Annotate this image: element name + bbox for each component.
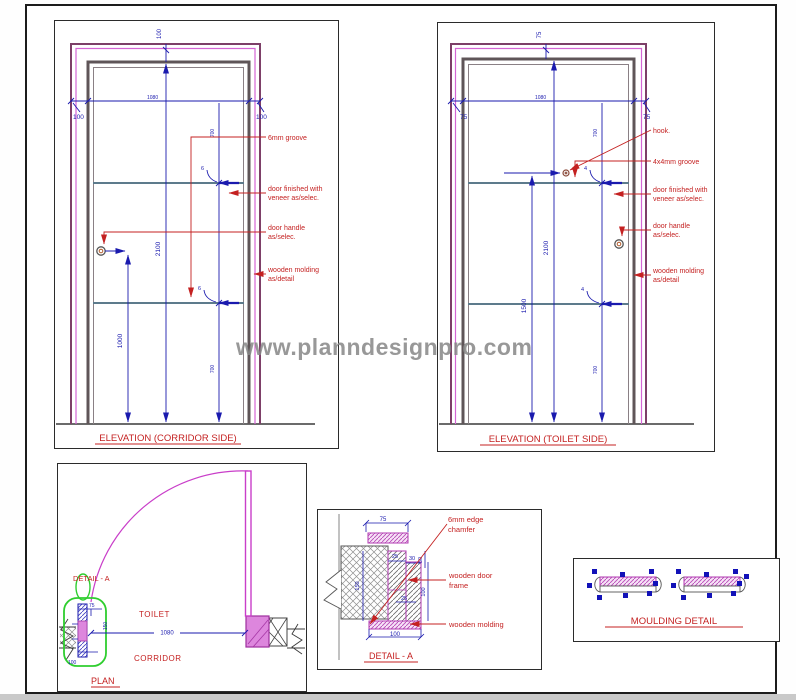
door-frame: [88, 62, 249, 424]
annotation-handle-1: door handle: [268, 225, 305, 232]
dim-molding-width: 100: [68, 660, 77, 666]
door-handle: [97, 247, 105, 255]
moulding-detail-drawing: MOULDING DETAIL: [574, 559, 779, 641]
dim-architrave-left: 100: [73, 114, 84, 121]
title-plan: PLAN: [91, 676, 115, 686]
title-elevation-toilet: ELEVATION (TOILET SIDE): [489, 434, 608, 445]
annotation-molding-1: wooden molding: [652, 268, 704, 275]
elevation-toilet-drawing: 75 75 75 1080 2100 1500 700 700 4 4 hook…: [438, 23, 714, 451]
label-toilet: TOILET: [139, 610, 170, 619]
door-handle-center: [99, 249, 103, 253]
dim-frame-depth: 150: [103, 622, 109, 631]
dim-groove-upper: 6: [201, 166, 204, 172]
dim-handle-height: 1000: [117, 333, 124, 348]
frame-molding-bit: [78, 621, 87, 641]
architrave-inner: [456, 49, 642, 425]
annotation-frame-1: wooden door: [448, 571, 493, 580]
corridor-annotations: 6mm groove door finished with veneer as/…: [267, 135, 323, 283]
dim-architrave-top: 75: [537, 31, 543, 38]
annotation-frame-2: frame: [449, 581, 468, 590]
wall-section-left: [60, 627, 76, 648]
dim-25b: 25: [401, 596, 407, 602]
annotation-molding-1: wooden molding: [267, 267, 319, 274]
annotation-chamfer-1: 6mm edge: [448, 515, 483, 524]
dim-architrave-right: 100: [256, 114, 267, 121]
annotation-groove: 4x4mm groove: [653, 159, 699, 166]
dim-75: 75: [380, 517, 387, 523]
dim-door-height: 2100: [543, 240, 550, 255]
dim-architrave-right: 75: [643, 114, 651, 121]
architrave-inner: [76, 49, 255, 425]
annotation-molding: wooden molding: [448, 620, 504, 629]
dim-panel-upper: 700: [210, 129, 216, 138]
dim-panel-lower: 700: [593, 366, 599, 375]
moulding-section-1: [587, 569, 661, 600]
plan-drawing: 75 150 100 1080 DETAIL - A TOILET CORRID…: [58, 464, 306, 691]
hook: [563, 170, 569, 176]
door-leaf-section: [406, 562, 421, 621]
dim-150: 150: [355, 581, 361, 590]
hook-center: [565, 172, 567, 174]
dim-frame-width: 75: [89, 603, 95, 609]
door-leaf-edge: [94, 68, 244, 425]
dim-architrave-top: 100: [157, 28, 163, 39]
panel-detail-a: 75 25 30 50 150 25 100 100 6mm edge cham…: [317, 509, 542, 670]
annotation-finish-2: veneer as/selec.: [653, 196, 704, 203]
door-swing-arc: [91, 471, 248, 602]
toilet-leaders: [570, 130, 651, 275]
sheet-bottom-edge: [0, 694, 796, 700]
annotation-molding-2: as/detail: [268, 276, 295, 283]
toilet-annotations: hook. 4x4mm groove door finished with ve…: [652, 128, 708, 284]
cad-drawing-sheet: 100 100 100 1080 2100 1000 700 700 6 6 6…: [0, 0, 796, 700]
dim-panel-upper: 700: [593, 129, 599, 138]
dim-100b: 100: [390, 632, 401, 638]
door-handle: [615, 240, 623, 248]
dim-hook-height: 1500: [521, 298, 528, 313]
annotation-finish-1: door finished with: [653, 187, 708, 194]
label-corridor: CORRIDOR: [134, 654, 182, 663]
title-moulding-detail: MOULDING DETAIL: [631, 616, 717, 627]
title-detail-a: DETAIL - A: [369, 651, 413, 661]
toilet-dim-texts: 75 75 75 1080 2100 1500 700 700 4 4: [460, 31, 651, 374]
wall-section: [341, 546, 388, 619]
dim-100a: 100: [421, 587, 427, 596]
detail-annotations: 6mm edge chamfer wooden door frame woode…: [448, 515, 504, 629]
dim-door-width: 1080: [147, 95, 158, 101]
annotation-handle-2: as/selec.: [268, 234, 296, 241]
corridor-dim-texts: 100 100 100 1080 2100 1000 700 700 6 6: [73, 28, 267, 373]
annotation-hook: hook.: [653, 128, 670, 135]
annotation-finish-1: door finished with: [268, 186, 323, 193]
dim-25a: 25: [392, 554, 398, 560]
panel-plan: 75 150 100 1080 DETAIL - A TOILET CORRID…: [57, 463, 307, 692]
door-leaf-open: [246, 471, 252, 616]
moulding-bar: [600, 577, 656, 586]
corridor-dimensions: [68, 44, 264, 422]
moulding-bar: [684, 577, 740, 586]
dim-groove-lower: 6: [198, 286, 201, 292]
elevation-corridor-drawing: 100 100 100 1080 2100 1000 700 700 6 6 6…: [55, 21, 338, 448]
toilet-dimensions: [448, 44, 650, 422]
annotation-molding-2: as/detail: [653, 277, 680, 284]
panel-moulding-detail: MOULDING DETAIL: [573, 558, 780, 642]
dim-door-height: 2100: [155, 241, 162, 256]
dim-door-width: 1080: [535, 95, 546, 101]
annotation-groove: 6mm groove: [268, 135, 307, 142]
dim-architrave-left: 75: [460, 114, 468, 121]
dim-panel-lower: 700: [210, 365, 216, 374]
annotation-finish-2: veneer as/selec.: [268, 195, 319, 202]
title-elevation-corridor: ELEVATION (CORRIDOR SIDE): [99, 433, 236, 444]
door-handle-center: [617, 242, 621, 246]
dim-groove-lower: 4: [581, 287, 584, 293]
panel-elevation-corridor: 100 100 100 1080 2100 1000 700 700 6 6 6…: [54, 20, 339, 449]
plan-opening-dim: 1080: [88, 627, 248, 637]
molding-top: [368, 533, 408, 543]
annotation-handle-2: as/selec.: [653, 232, 681, 239]
annotation-handle-1: door handle: [653, 223, 690, 230]
dim-30: 30: [409, 556, 415, 562]
annotation-chamfer-2: chamfer: [448, 525, 476, 534]
label-detail-a: DETAIL - A: [73, 574, 110, 583]
dim-groove-upper: 4: [584, 166, 587, 172]
wall-break-mask: [324, 570, 341, 609]
molding-bottom: [369, 621, 421, 629]
panel-elevation-toilet: 75 75 75 1080 2100 1500 700 700 4 4 hook…: [437, 22, 715, 452]
door-frame-section: [388, 551, 406, 621]
dim-opening: 1080: [160, 631, 174, 637]
detail-a-drawing: 75 25 30 50 150 25 100 100 6mm edge cham…: [318, 510, 541, 669]
moulding-section-2: [671, 569, 749, 600]
